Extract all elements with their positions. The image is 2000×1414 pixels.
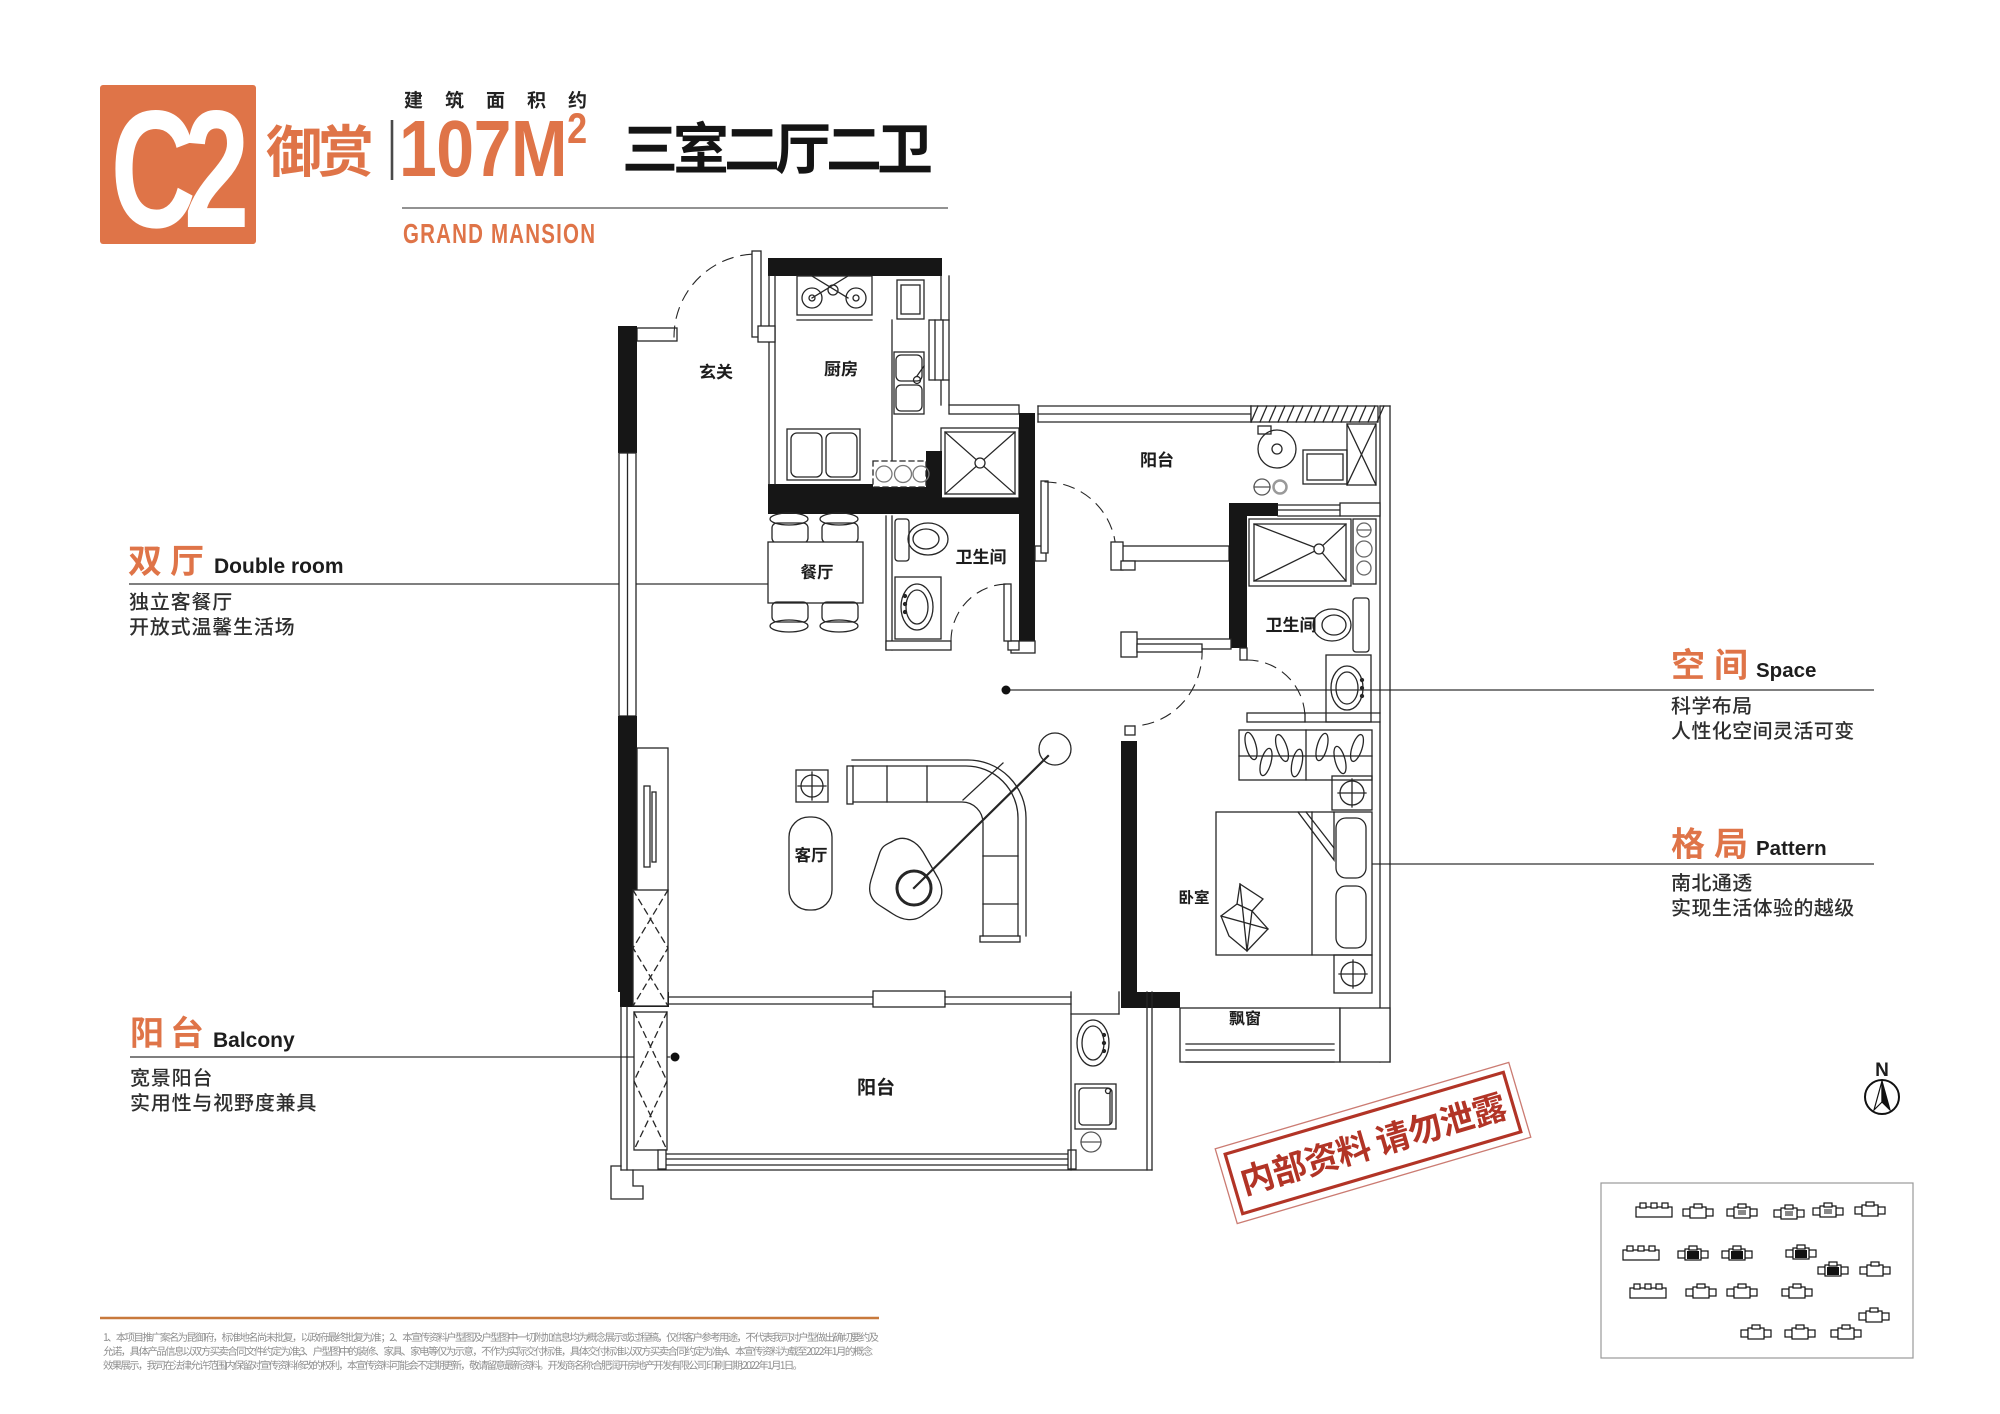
svg-text:Double room: Double room <box>214 555 344 578</box>
svg-text:Balcony: Balcony <box>213 1029 295 1052</box>
svg-text:Space: Space <box>1756 659 1816 682</box>
svg-text:N: N <box>1875 1060 1889 1081</box>
svg-text:107M2: 107M2 <box>399 104 587 194</box>
svg-text:C2: C2 <box>111 76 245 263</box>
svg-text:Pattern: Pattern <box>1756 837 1827 860</box>
svg-text:GRAND MANSION: GRAND MANSION <box>403 219 596 250</box>
